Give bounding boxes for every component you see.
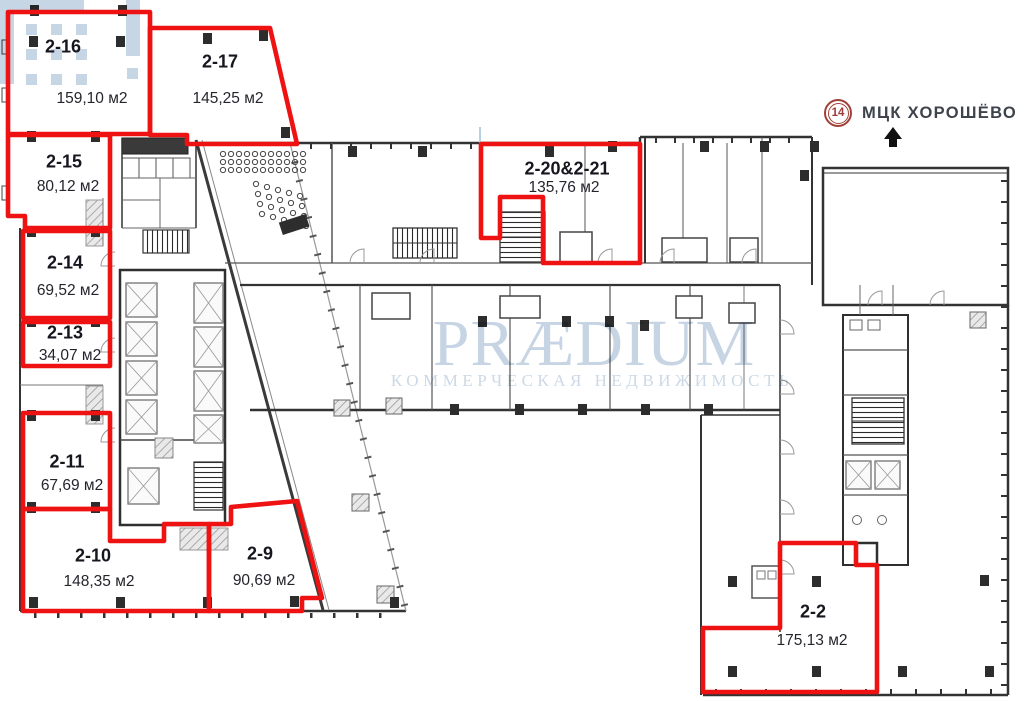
column [418,146,427,157]
column [812,666,821,677]
floor-plan-canvas [0,0,1024,701]
column [641,404,650,415]
column [898,666,907,677]
column [608,141,617,152]
column [515,404,524,415]
column [27,502,36,513]
column [760,141,769,152]
column [29,597,38,608]
column [281,127,290,138]
column [91,502,100,513]
column [390,597,399,608]
column [578,404,587,415]
column [91,226,100,237]
column [348,146,357,157]
column [450,404,459,415]
column [478,316,487,327]
column [203,597,212,608]
staircase [194,462,223,510]
column [27,410,36,421]
column [27,316,36,327]
floor-plan-image: PRÆDIUM КОММЕРЧЕСКАЯ НЕДВИЖИМОСТЬ 2-16 1… [0,0,1024,701]
column [812,576,821,587]
column [91,410,100,421]
column [116,36,125,47]
column [728,666,737,677]
column [810,141,819,152]
column [605,316,614,327]
column [30,5,39,16]
column [545,146,554,157]
column [728,576,737,587]
column [91,131,100,142]
shaft-hatch [155,438,173,458]
column [91,316,100,327]
column [800,170,809,181]
column [118,5,127,16]
column [203,33,212,44]
column [29,36,38,47]
column [640,320,649,331]
column [290,596,299,607]
column [562,316,571,327]
column [27,226,36,237]
column [27,131,36,142]
column [259,30,268,41]
column [700,141,709,152]
column [116,597,125,608]
column [980,575,989,586]
column [704,404,713,415]
column [985,666,994,677]
staircase [143,230,189,253]
